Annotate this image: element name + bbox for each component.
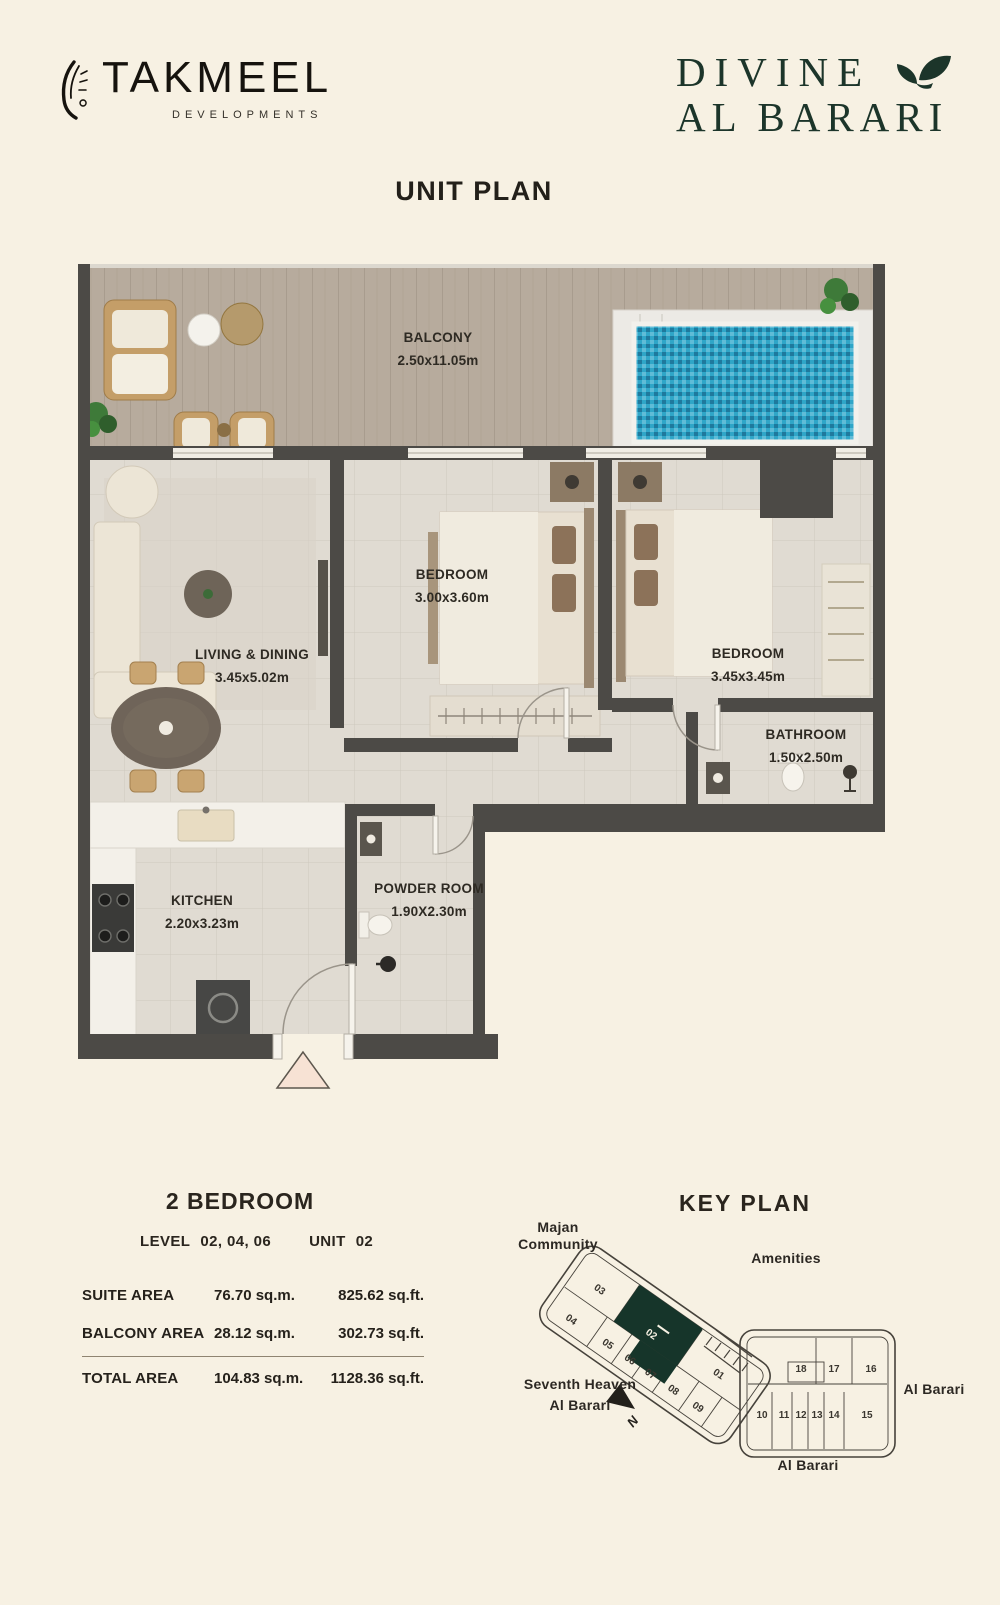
takmeel-calligraphy-icon bbox=[52, 56, 92, 122]
label-kitchen: KITCHEN 2.20x3.23m bbox=[165, 893, 239, 931]
svg-text:14: 14 bbox=[828, 1410, 840, 1421]
label-bedroom2: BEDROOM 3.45x3.45m bbox=[711, 646, 785, 684]
label-powder-room: POWDER ROOM 1.90X2.30m bbox=[374, 881, 484, 919]
unit-value: 02 bbox=[356, 1233, 374, 1250]
unit-label: UNIT bbox=[309, 1233, 346, 1250]
level-value: 02, 04, 06 bbox=[200, 1233, 271, 1250]
takmeel-logo: TAKMEEL DEVELOPMENTS bbox=[52, 56, 332, 122]
table-row-total-area: TOTAL AREA 104.83 sq.m. 1128.36 sq.ft. bbox=[82, 1356, 424, 1397]
level-label: LEVEL bbox=[140, 1233, 190, 1250]
table-row-balcony-area: BALCONY AREA 28.12 sq.m. 302.73 sq.ft. bbox=[82, 1314, 424, 1352]
bedroom1-wardrobe bbox=[430, 696, 600, 736]
label-albarari-bottom: Al Barari bbox=[777, 1457, 838, 1473]
svg-text:05: 05 bbox=[600, 1337, 616, 1353]
svg-text:Community: Community bbox=[518, 1236, 598, 1252]
label-bedroom1: BEDROOM 3.00x3.60m bbox=[415, 567, 489, 605]
level-unit-row: LEVEL 02, 04, 06 UNIT 02 bbox=[140, 1233, 380, 1250]
svg-text:15: 15 bbox=[861, 1410, 873, 1421]
area-table: SUITE AREA 76.70 sq.m. 825.62 sq.ft. BAL… bbox=[82, 1276, 424, 1397]
leaf-icon bbox=[881, 50, 955, 96]
divine-al-barari-logo: DIVINE AL BARARI bbox=[676, 50, 955, 139]
svg-text:17: 17 bbox=[828, 1364, 840, 1375]
svg-text:10: 10 bbox=[756, 1410, 768, 1421]
label-balcony: BALCONY 2.50x11.05m bbox=[397, 330, 478, 368]
label-seventh-heaven: Seventh Heaven bbox=[524, 1376, 636, 1392]
svg-text:N: N bbox=[624, 1413, 642, 1430]
label-amenities: Amenities bbox=[751, 1250, 821, 1266]
label-living-dining: LIVING & DINING 3.45x5.02m bbox=[195, 647, 309, 685]
svg-text:12: 12 bbox=[795, 1410, 807, 1421]
label-bathroom: BATHROOM 1.50x2.50m bbox=[766, 727, 847, 765]
bedroom2-closet bbox=[822, 564, 870, 696]
svg-text:11: 11 bbox=[779, 1410, 790, 1421]
plunge-pool bbox=[613, 310, 873, 450]
brand-name: TAKMEEL bbox=[102, 56, 332, 100]
project-name-line2: AL BARARI bbox=[676, 96, 955, 139]
washing-machine bbox=[196, 980, 250, 1036]
brand-tagline: DEVELOPMENTS bbox=[172, 109, 332, 121]
keyplan-graphic: 03 02 04 01 05 06 07 08 09 bbox=[500, 1212, 970, 1522]
keyplan-wing-b: 18 17 16 10 11 12 13 14 15 bbox=[740, 1330, 895, 1457]
table-row-suite-area: SUITE AREA 76.70 sq.m. 825.62 sq.ft. bbox=[82, 1276, 424, 1314]
svg-text:01: 01 bbox=[711, 1367, 727, 1383]
svg-text:09: 09 bbox=[690, 1400, 706, 1416]
unit-type-heading: 2 BEDROOM bbox=[150, 1188, 330, 1215]
svg-text:16: 16 bbox=[865, 1364, 877, 1375]
keyplan-connector bbox=[704, 1330, 752, 1373]
page-title: UNIT PLAN bbox=[0, 176, 948, 207]
floor-plan: BALCONY 2.50x11.05m BEDROOM 3.00x3.60m B… bbox=[78, 264, 890, 1090]
label-majan-community: Majan bbox=[537, 1219, 578, 1235]
svg-text:Al Barari: Al Barari bbox=[549, 1397, 610, 1413]
balcony-railing bbox=[90, 264, 873, 268]
svg-text:04: 04 bbox=[563, 1313, 579, 1329]
svg-text:13: 13 bbox=[811, 1410, 823, 1421]
svg-text:08: 08 bbox=[665, 1383, 681, 1399]
svg-text:03: 03 bbox=[592, 1282, 608, 1298]
project-name-line1: DIVINE bbox=[676, 51, 871, 94]
svg-text:18: 18 bbox=[795, 1364, 807, 1375]
label-albarari-right: Al Barari bbox=[903, 1381, 964, 1397]
entrance-marker bbox=[277, 1052, 329, 1088]
keyplan: 03 02 04 01 05 06 07 08 09 bbox=[500, 1212, 970, 1522]
